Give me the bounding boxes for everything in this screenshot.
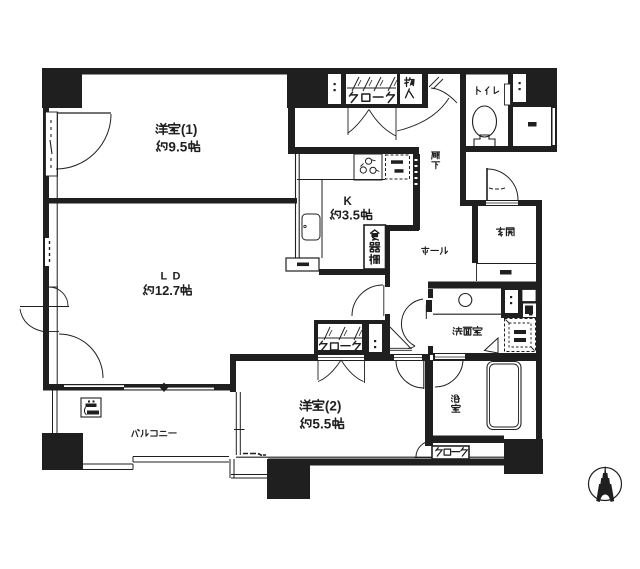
svg-text:5.5: 5.5 xyxy=(312,416,331,431)
svg-text:9.5: 9.5 xyxy=(168,139,187,154)
svg-text:(1): (1) xyxy=(181,122,198,137)
svg-text:K: K xyxy=(344,196,353,208)
svg-text:3.5: 3.5 xyxy=(342,207,360,222)
svg-text:12.7: 12.7 xyxy=(155,283,180,298)
svg-text:L D: L D xyxy=(161,271,182,283)
svg-text:(2): (2) xyxy=(325,398,342,413)
